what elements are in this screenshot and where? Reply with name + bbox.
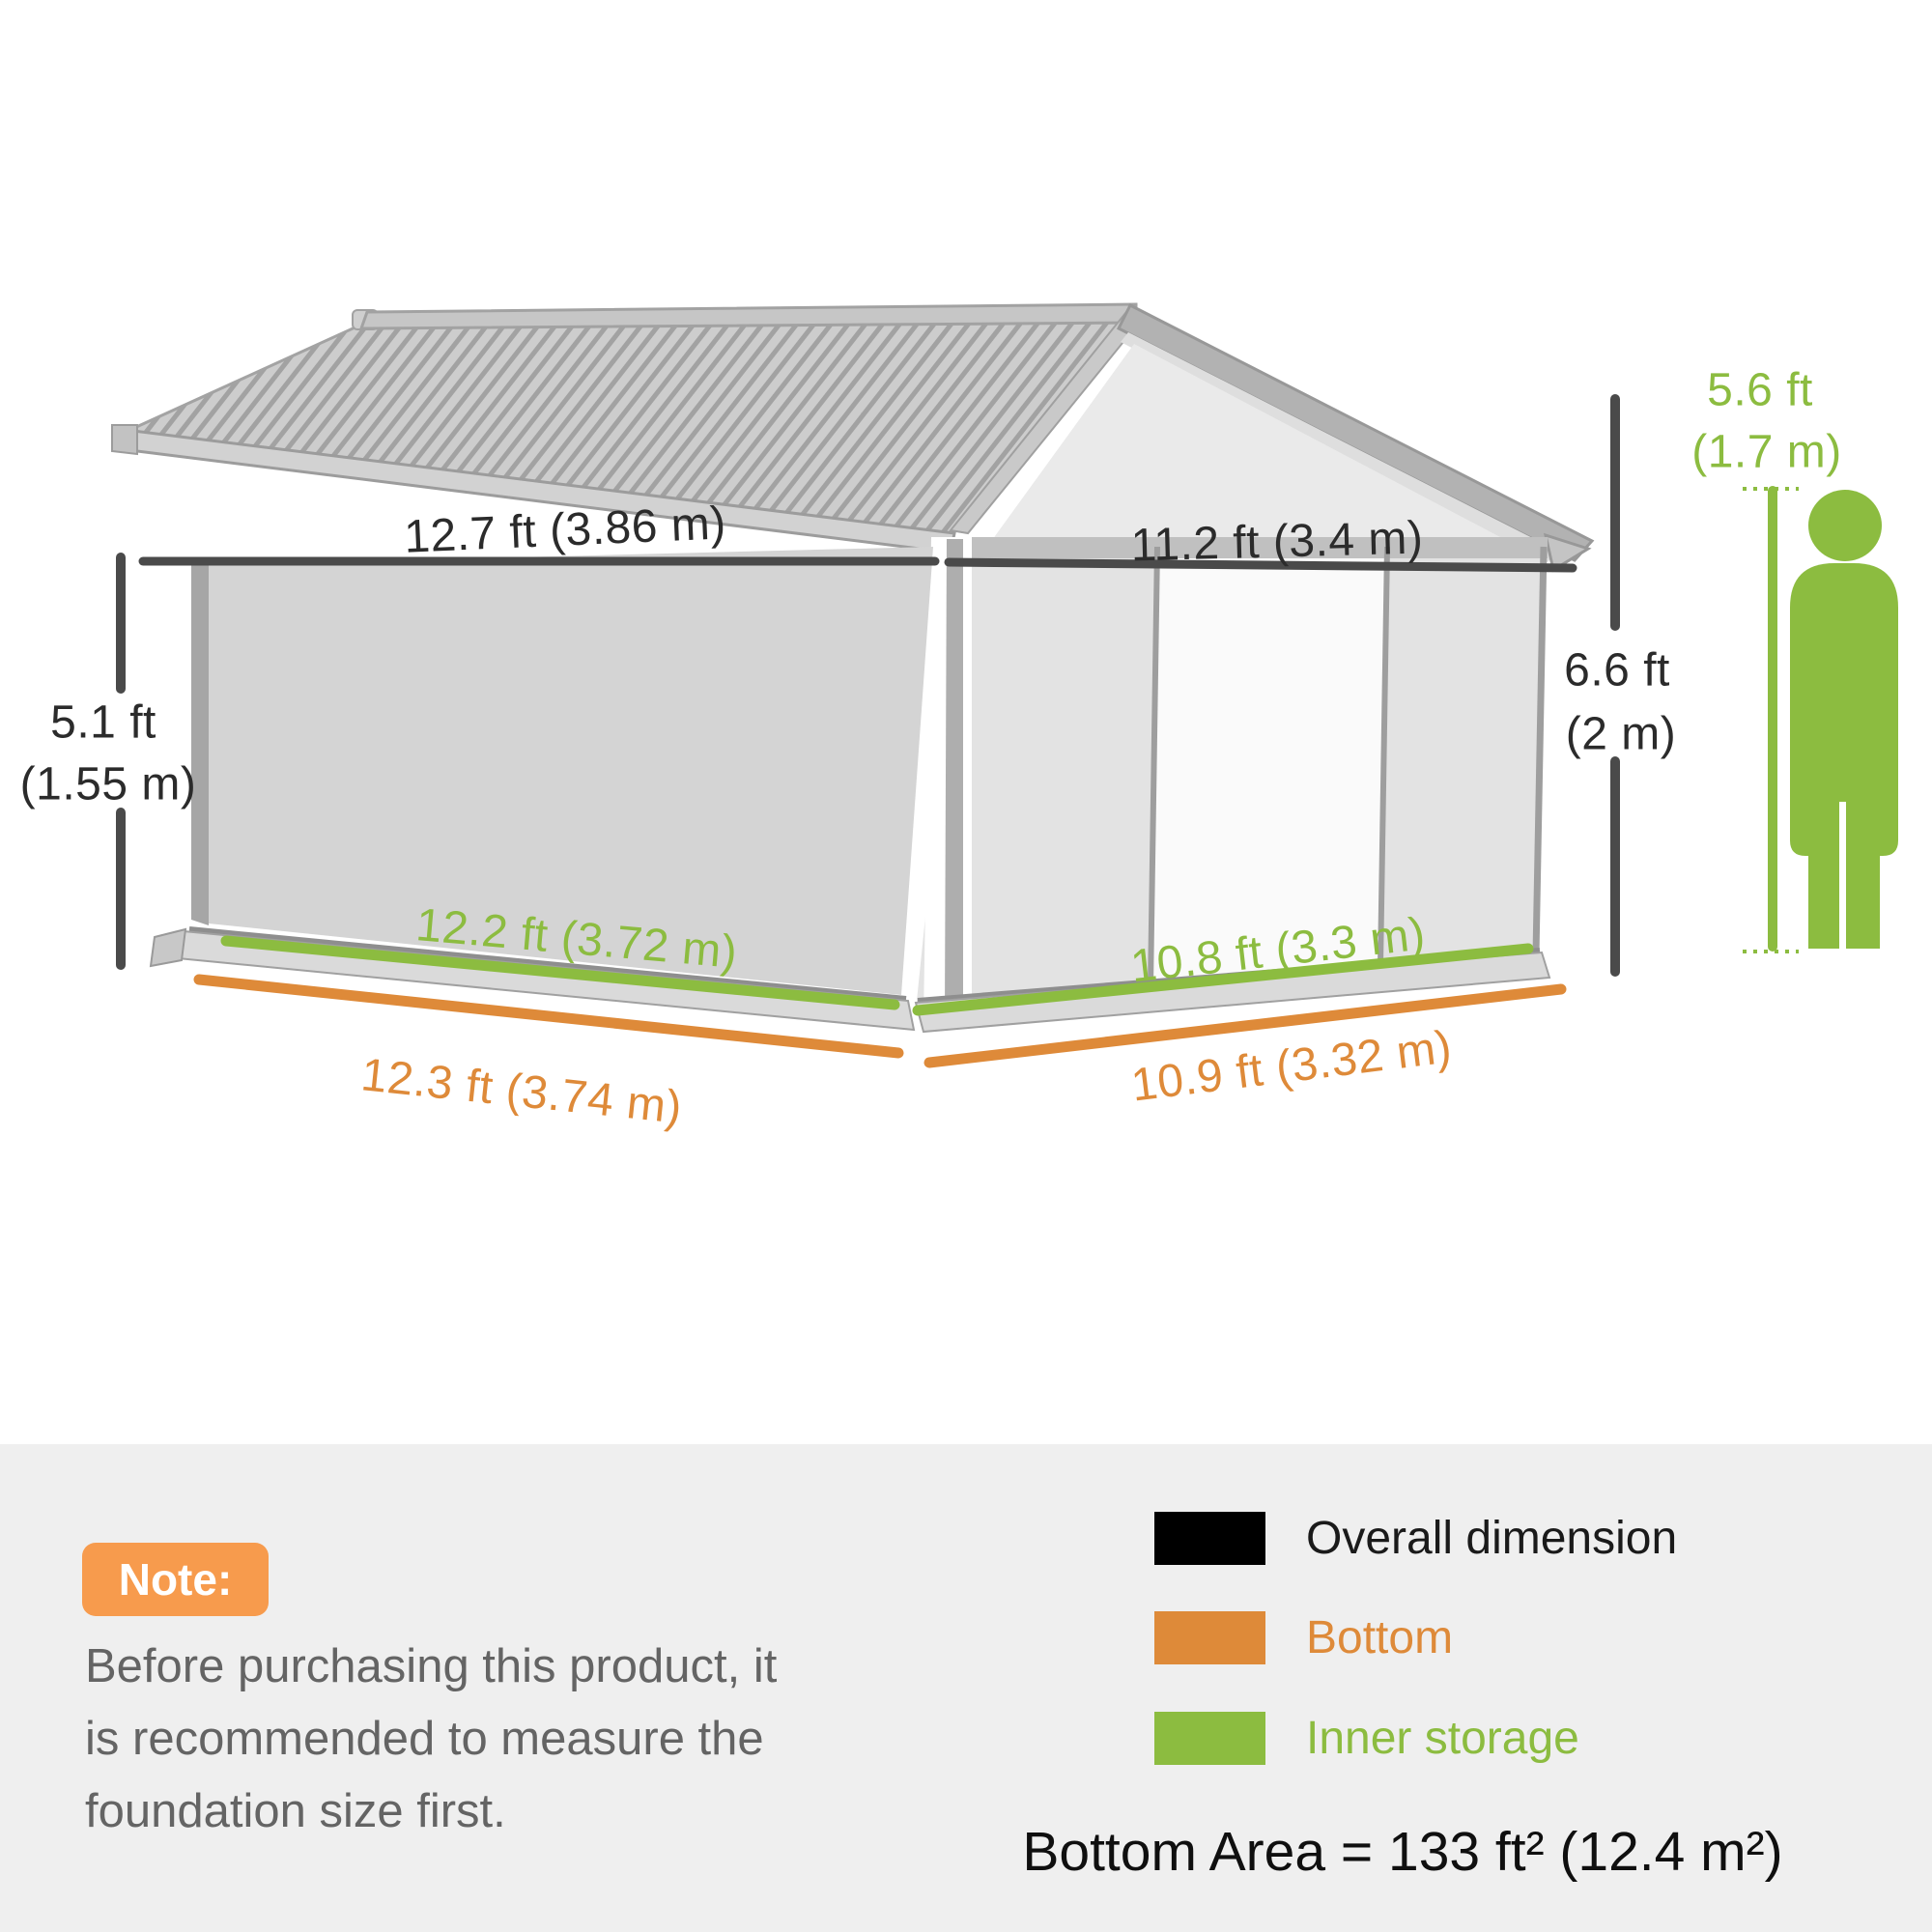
dim-label-person-height-m: (1.7 m) [1691,426,1842,479]
legend-swatch-overall-dimension [1154,1512,1265,1565]
legend-label-overall-dimension: Overall dimension [1306,1512,1677,1565]
dim-label-eave-height-ft: 5.1 ft [50,696,156,750]
legend-item-bottom: Bottom [1154,1611,1453,1664]
legend-item-overall-dimension: Overall dimension [1154,1512,1677,1565]
left-wall-edge-band [191,563,209,925]
dim-label-wall-height-m: (2 m) [1566,708,1676,761]
legend-label-bottom: Bottom [1306,1611,1453,1664]
roof-left-tip [112,425,137,454]
legend-swatch-inner-storage [1154,1712,1265,1765]
note-line-3: foundation size first. [85,1776,777,1848]
note-text: Before purchasing this product, it is re… [85,1631,777,1848]
base-trim-side-tip [151,929,185,966]
corner-post [945,539,963,1016]
shed-dimension-infographic: 12.7 ft (3.86 m) 11.2 ft (3.4 m) 5.1 ft … [0,0,1932,1932]
person-head [1808,490,1882,561]
note-line-1: Before purchasing this product, it [85,1631,777,1703]
note-line-2: is recommended to measure the [85,1703,777,1776]
dim-label-front-top: 11.2 ft (3.4 m) [1130,512,1424,573]
note-badge: Note: [82,1543,269,1616]
roof-ridge [361,304,1136,328]
legend-swatch-bottom [1154,1611,1265,1664]
dim-label-eave-height-m: (1.55 m) [20,758,197,811]
legend-item-inner-storage: Inner storage [1154,1712,1579,1765]
bottom-area-summary: Bottom Area = 133 ft² (12.4 m²) [1022,1820,1782,1884]
legend-label-inner-storage: Inner storage [1306,1712,1579,1765]
dim-label-wall-height-ft: 6.6 ft [1564,644,1670,697]
person-leg-divider [1839,802,1846,949]
dim-label-person-height-ft: 5.6 ft [1707,364,1813,417]
